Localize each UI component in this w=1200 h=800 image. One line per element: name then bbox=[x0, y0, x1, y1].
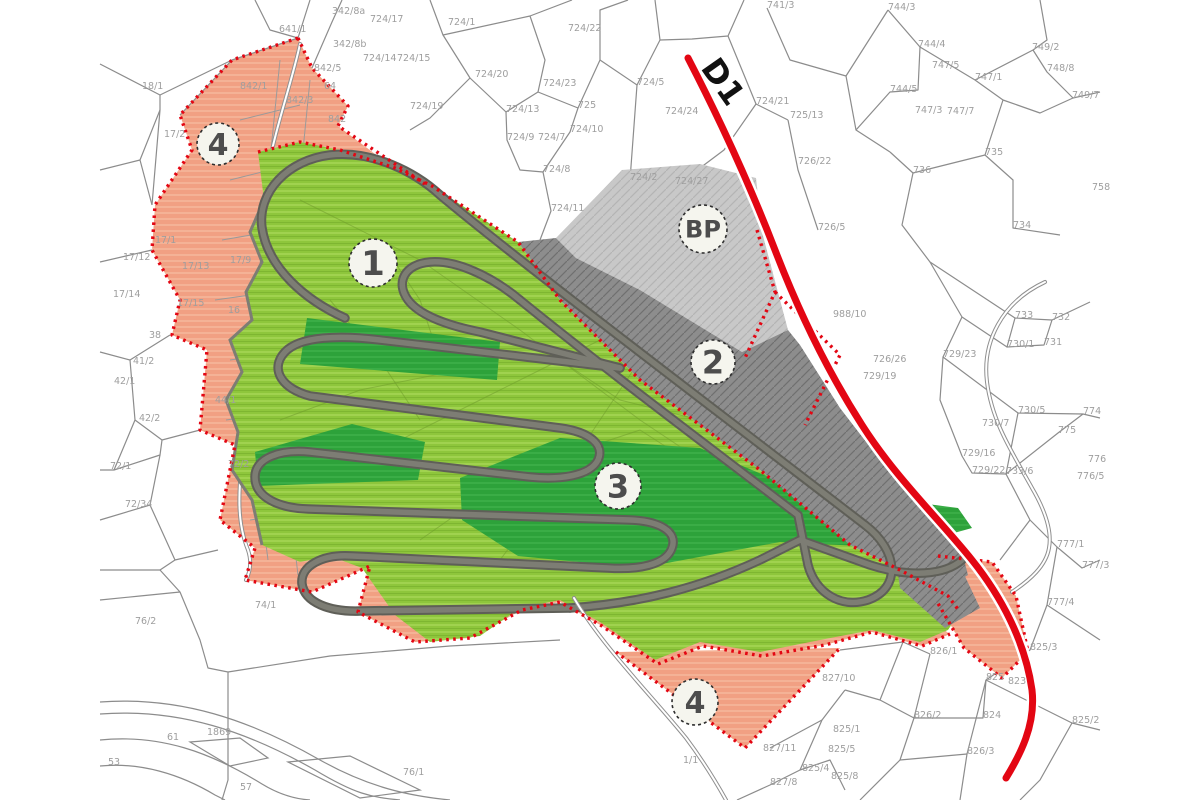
parcel-label: 988/10 bbox=[833, 309, 866, 320]
parcel-label: 825/5 bbox=[828, 744, 855, 755]
cadastral-map-page: D1 12344BP 342/8a724/17724/1741/3724/226… bbox=[0, 0, 1200, 800]
parcel-label: 724/13 bbox=[506, 104, 539, 115]
parcel-label: 724/21 bbox=[756, 96, 789, 107]
parcel-label: 826/3 bbox=[967, 746, 994, 757]
parcel-label: 17/9 bbox=[230, 255, 251, 266]
parcel-label: 741/3 bbox=[767, 0, 794, 11]
parcel-label: 17/12 bbox=[123, 252, 150, 263]
parcel-label: 342/8b bbox=[333, 39, 366, 50]
parcel-label: 74/1 bbox=[255, 600, 276, 611]
zone-badge-2: 2 bbox=[691, 340, 735, 384]
parcel-label: 730/1 bbox=[1007, 339, 1034, 350]
parcel-label: 758 bbox=[1092, 182, 1110, 193]
parcel-label: 825/3 bbox=[1030, 642, 1057, 653]
parcel-label: 842/1 bbox=[240, 81, 267, 92]
parcel-label: 725 bbox=[578, 100, 596, 111]
parcel-label: 729/16 bbox=[962, 448, 995, 459]
parcel-label: 724/27 bbox=[675, 176, 708, 187]
parcel-label: 730/5 bbox=[1018, 405, 1045, 416]
parcel-label: 724/8 bbox=[543, 164, 570, 175]
parcel-label: 827/10 bbox=[822, 673, 855, 684]
parcel-label: 726/26 bbox=[873, 354, 906, 365]
parcel-label: 733/6 bbox=[1006, 466, 1033, 477]
parcel-label: 747/3 bbox=[915, 105, 942, 116]
parcel-label: 724/19 bbox=[410, 101, 443, 112]
zone-badge-label: 4 bbox=[685, 686, 706, 721]
parcel-label: 730/7 bbox=[982, 418, 1009, 429]
zone-badge-label: 1 bbox=[361, 244, 385, 284]
parcel-label: 17/13 bbox=[182, 261, 209, 272]
parcel-label: 724/11 bbox=[551, 203, 584, 214]
parcel-label: 724/17 bbox=[370, 14, 403, 25]
parcel-label: 729/22 bbox=[972, 465, 1005, 476]
parcel-label: 18/1 bbox=[142, 81, 163, 92]
parcel-label: 823 bbox=[1008, 676, 1026, 687]
zone-badge-1: 1 bbox=[349, 239, 397, 287]
parcel-label: 57 bbox=[240, 782, 252, 793]
parcel-label: 825/1 bbox=[833, 724, 860, 735]
parcel-label: 825 bbox=[986, 672, 1004, 683]
parcel-label: 64 bbox=[324, 81, 336, 92]
parcel-label: 724/23 bbox=[543, 78, 576, 89]
parcel-label: 736 bbox=[913, 165, 931, 176]
parcel-label: 731 bbox=[1044, 337, 1062, 348]
parcel-label: 827/11 bbox=[763, 743, 796, 754]
parcel-label: 744/4 bbox=[918, 39, 945, 50]
parcel-label: 17/15 bbox=[177, 298, 204, 309]
parcel-label: 41/2 bbox=[133, 356, 154, 367]
parcel-label: 726/22 bbox=[798, 156, 831, 167]
map-canvas[interactable]: D1 12344BP 342/8a724/17724/1741/3724/226… bbox=[0, 0, 1200, 800]
parcel-label: 825/4 bbox=[802, 763, 829, 774]
parcel-label: 777/4 bbox=[1047, 597, 1074, 608]
river-lines bbox=[100, 701, 450, 800]
parcel-label: 72/34 bbox=[125, 499, 152, 510]
parcel-label: 729/23 bbox=[943, 349, 976, 360]
parcel-label: 724/2 bbox=[630, 172, 657, 183]
zone-badge-4: 4 bbox=[672, 679, 718, 725]
parcel-label: 777/3 bbox=[1082, 560, 1109, 571]
parcel-label: 44/1 bbox=[215, 395, 236, 406]
zone-badge-label: BP bbox=[685, 216, 721, 244]
parcel-label: 342/8a bbox=[332, 6, 365, 17]
parcel-label: 1/1 bbox=[683, 755, 698, 766]
parcel-label: 724/20 bbox=[475, 69, 508, 80]
parcel-label: 641/1 bbox=[279, 24, 306, 35]
parcel-label: 774 bbox=[1083, 406, 1101, 417]
parcel-label: 724/9 bbox=[507, 132, 534, 143]
parcel-label: 726/5 bbox=[818, 222, 845, 233]
parcel-label: 724/1 bbox=[448, 17, 475, 28]
parcel-label: 724/22 bbox=[568, 23, 601, 34]
parcel-label: 17/1 bbox=[155, 235, 176, 246]
parcel-label: 725/13 bbox=[790, 110, 823, 121]
d1-road-label: D1 bbox=[693, 51, 752, 113]
parcel-label: 724/14 bbox=[363, 53, 396, 64]
parcel-label: 776 bbox=[1088, 454, 1106, 465]
zone-badge-label: 4 bbox=[208, 128, 229, 163]
parcel-label: 17/14 bbox=[113, 289, 140, 300]
parcel-label: 724/10 bbox=[570, 124, 603, 135]
parcel-label: 42/2 bbox=[139, 413, 160, 424]
parcel-label: 842/5 bbox=[314, 63, 341, 74]
parcel-label: 38 bbox=[149, 330, 161, 341]
parcel-label: 747/7 bbox=[947, 106, 974, 117]
parcel-label: 824 bbox=[983, 710, 1001, 721]
parcel-label: 76/1 bbox=[403, 767, 424, 778]
parcel-label: 72/2 bbox=[228, 459, 249, 470]
parcel-label: 749/7 bbox=[1072, 90, 1099, 101]
parcel-label: 825/2 bbox=[1072, 715, 1099, 726]
parcel-label: 775 bbox=[1058, 425, 1076, 436]
parcel-label: 827/8 bbox=[770, 777, 797, 788]
parcel-label: 724/5 bbox=[637, 77, 664, 88]
parcel-label: 729/19 bbox=[863, 371, 896, 382]
zone-badge-bp: BP bbox=[679, 205, 727, 253]
parcel-label: 842 bbox=[328, 114, 346, 125]
zone-badge-3: 3 bbox=[595, 463, 641, 509]
zone-badge-4: 4 bbox=[197, 123, 239, 165]
parcel-label: 76/2 bbox=[135, 616, 156, 627]
parcel-label: 1869 bbox=[207, 727, 231, 738]
parcel-label: 42/1 bbox=[114, 376, 135, 387]
parcel-label: 53 bbox=[108, 757, 120, 768]
parcel-label: 733 bbox=[1015, 310, 1033, 321]
zone-badge-label: 2 bbox=[702, 344, 724, 382]
parcel-label: 826/1 bbox=[930, 646, 957, 657]
minor-road-east bbox=[986, 282, 1050, 592]
parcel-label: 826/2 bbox=[914, 710, 941, 721]
parcel-label: 734 bbox=[1013, 220, 1031, 231]
parcel-label: 747/5 bbox=[932, 60, 959, 71]
parcel-label: 748/8 bbox=[1047, 63, 1074, 74]
parcel-label: 732 bbox=[1052, 312, 1070, 323]
parcel-label: 735 bbox=[985, 147, 1003, 158]
parcel-label: 724/24 bbox=[665, 106, 698, 117]
parcel-label: 724/7 bbox=[538, 132, 565, 143]
parcel-label: 744/5 bbox=[890, 84, 917, 95]
parcel-label: 744/3 bbox=[888, 2, 915, 13]
parcel-label: 749/2 bbox=[1032, 42, 1059, 53]
parcel-label: 776/5 bbox=[1077, 471, 1104, 482]
parcel-label: 724/15 bbox=[397, 53, 430, 64]
parcel-label: 777/1 bbox=[1057, 539, 1084, 550]
parcel-label: 61 bbox=[167, 732, 179, 743]
parcel-label: 17/2 bbox=[164, 129, 185, 140]
parcel-label: 16 bbox=[228, 305, 240, 316]
zone-badge-label: 3 bbox=[607, 468, 629, 506]
parcel-label: 747/1 bbox=[975, 72, 1002, 83]
parcel-label: 842/3 bbox=[286, 95, 313, 106]
parcel-label: 72/1 bbox=[110, 461, 131, 472]
parcel-label: 825/8 bbox=[831, 771, 858, 782]
